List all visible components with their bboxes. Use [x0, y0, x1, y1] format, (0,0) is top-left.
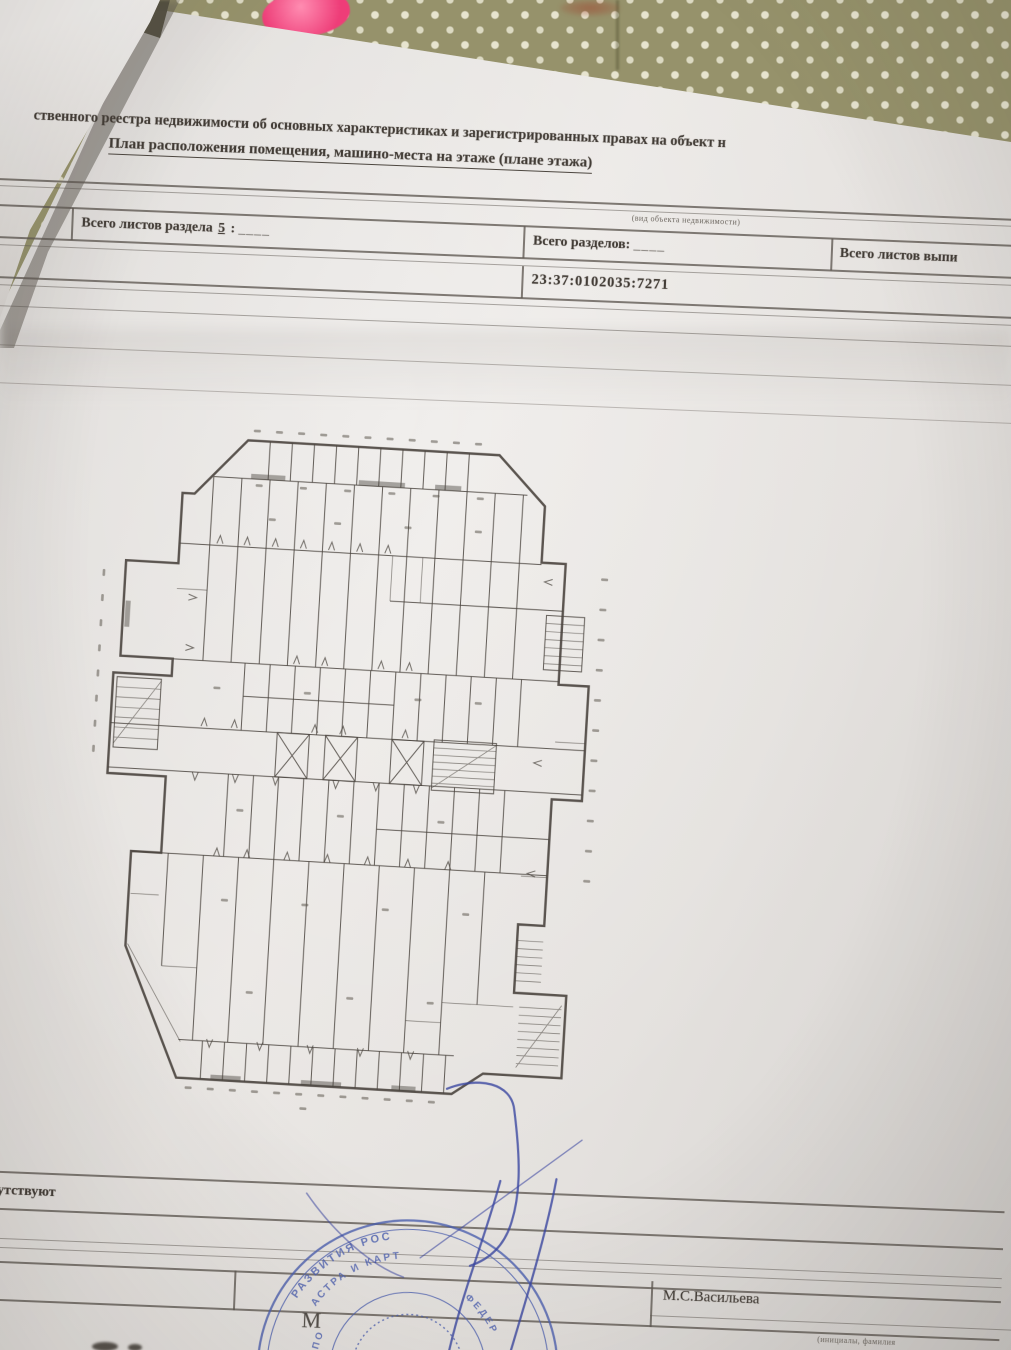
tablecloth-pattern-accent — [560, 0, 620, 16]
photo-of-document: ственного реестра недвижимости об основн… — [0, 0, 1011, 1350]
signature-ink — [0, 58, 1010, 1350]
photo-artifact — [128, 1344, 142, 1350]
photo-artifact — [92, 1342, 118, 1350]
printed-content: ственного реестра недвижимости об основн… — [0, 58, 1010, 1350]
